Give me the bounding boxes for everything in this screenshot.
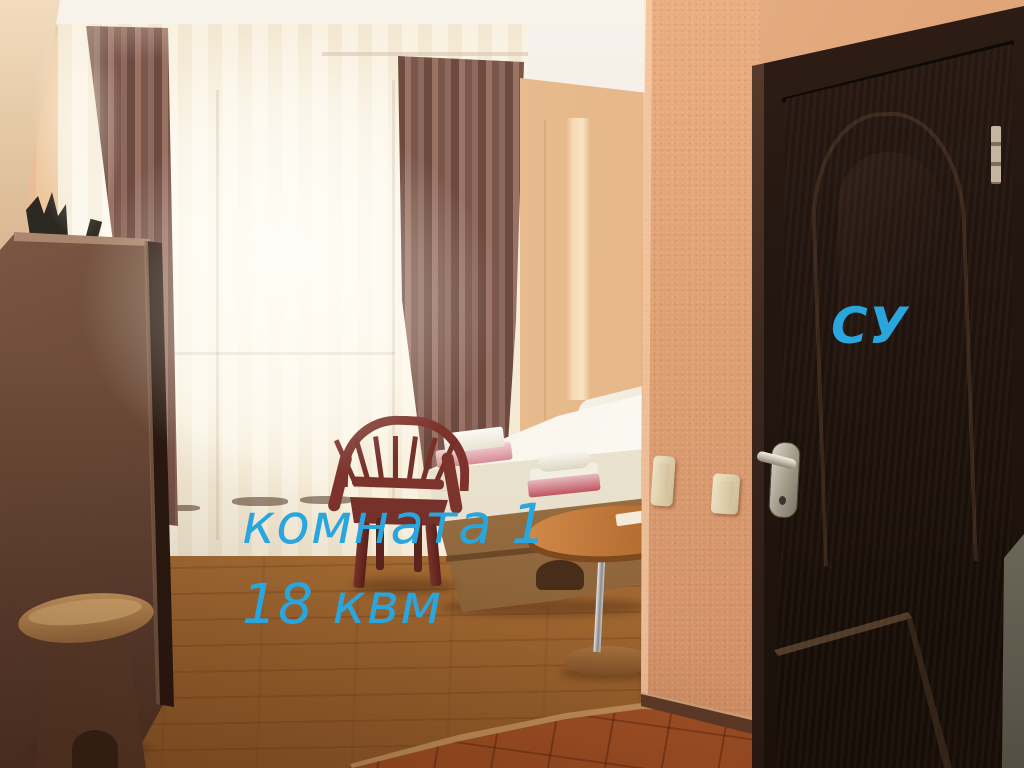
niche-corner-line [544,120,546,420]
curtain-rail [322,52,528,56]
table-base [564,646,652,676]
niche-light-strip [566,118,590,400]
light-switch-left-rocker[interactable] [656,463,670,500]
bed-base-arch-cutout [536,560,584,590]
room-photo: комната 1 18 квм СУ [0,0,1024,768]
door-handle-plate [768,441,801,518]
window-frame-line [216,90,219,540]
window-frame-line [165,352,395,355]
door-keyhole [779,496,786,505]
room-annotation: комната 1 [242,497,547,552]
door-hinge [991,126,1001,184]
door-annotation: СУ [831,301,908,351]
light-switch-right-rocker[interactable] [717,481,734,509]
stool-leg-cutout [72,730,118,768]
area-annotation: 18 квм [242,577,443,632]
